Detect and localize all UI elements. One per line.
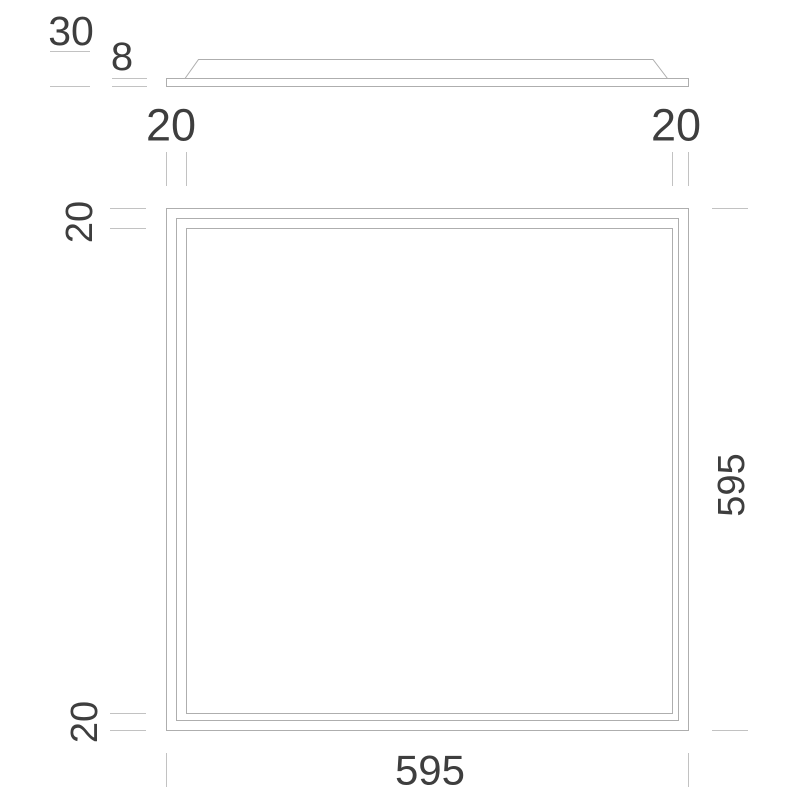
frame-width-left-ticks	[110, 209, 146, 731]
dim-label-panel-width: 595	[395, 747, 465, 794]
overall-size-extension-lines	[167, 209, 749, 788]
dim-label-frame-top-right: 20	[651, 100, 701, 151]
front-view	[167, 209, 689, 731]
dim-label-profile-thickness: 8	[111, 35, 133, 79]
dim-label-frame-top-left: 20	[146, 100, 196, 151]
panel-outer-edge	[167, 209, 689, 731]
profile-body-outline	[185, 60, 668, 79]
dim-label-panel-height: 595	[711, 453, 753, 516]
profile-base-plate-outline	[167, 79, 689, 87]
dimension-diagram: 30 8 20 20 20 20 595 595	[0, 0, 800, 800]
dimension-labels: 30 8 20 20 20 20 595 595	[48, 8, 753, 794]
panel-inner-edge	[187, 229, 673, 714]
panel-mid-edge	[177, 219, 679, 721]
frame-width-top-ticks	[167, 152, 689, 186]
dim-label-profile-height: 30	[48, 8, 94, 54]
dim-label-frame-left-top: 20	[59, 201, 101, 243]
technical-drawing-canvas: 30 8 20 20 20 20 595 595	[0, 0, 800, 800]
dim-label-frame-left-bottom: 20	[64, 701, 106, 743]
side-profile-view	[167, 60, 689, 87]
